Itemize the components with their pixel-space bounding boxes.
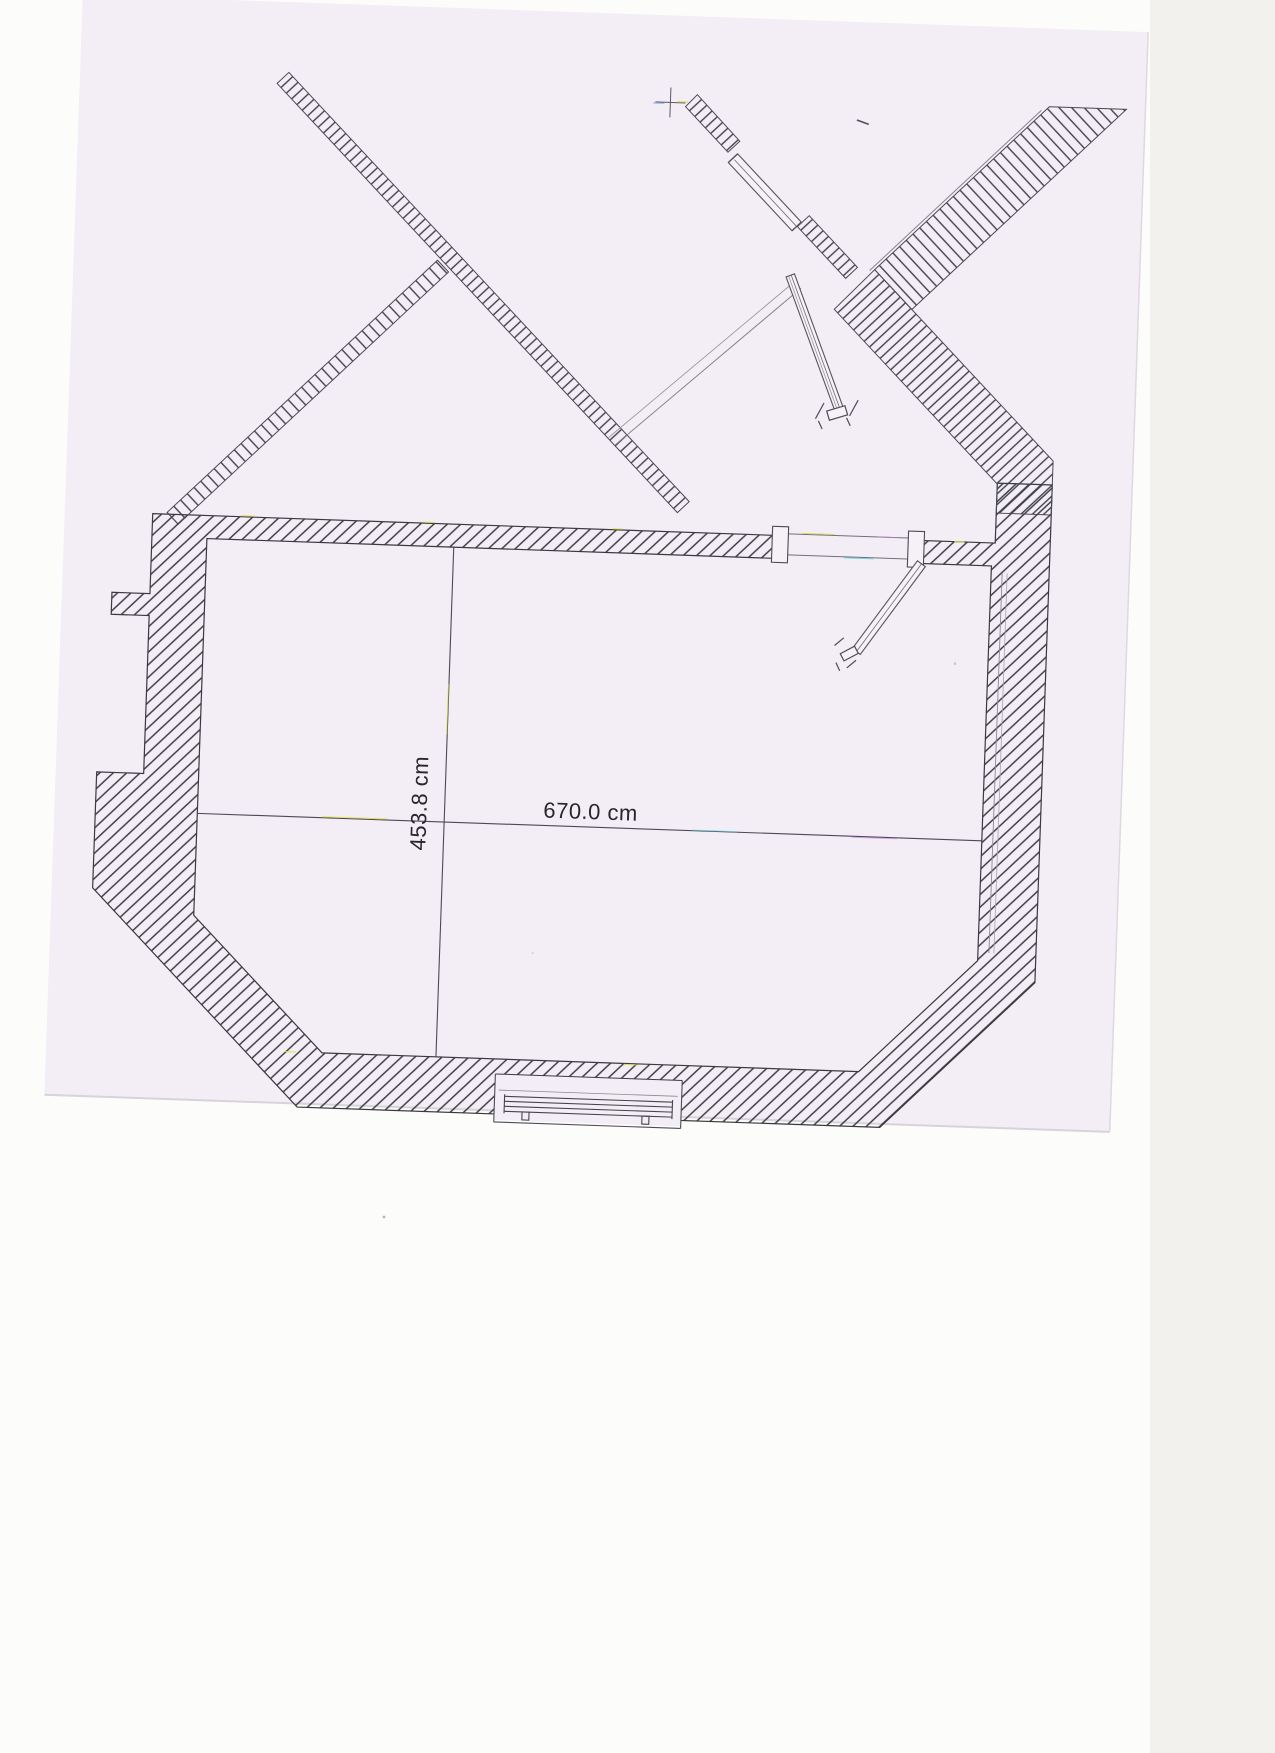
scanner-right-strip xyxy=(1150,0,1275,1753)
door-jamb-left xyxy=(771,526,788,563)
floor-plan-scan: 670.0 cm 453.8 cm xyxy=(0,0,1275,1753)
height-dimension-label: 453.8 cm xyxy=(405,755,433,850)
door-opening-clear xyxy=(787,524,908,572)
paper-speck xyxy=(383,1216,386,1219)
scanned-sheet: 670.0 cm 453.8 cm xyxy=(44,0,1148,1143)
width-dimension-label: 670.0 cm xyxy=(543,797,638,825)
